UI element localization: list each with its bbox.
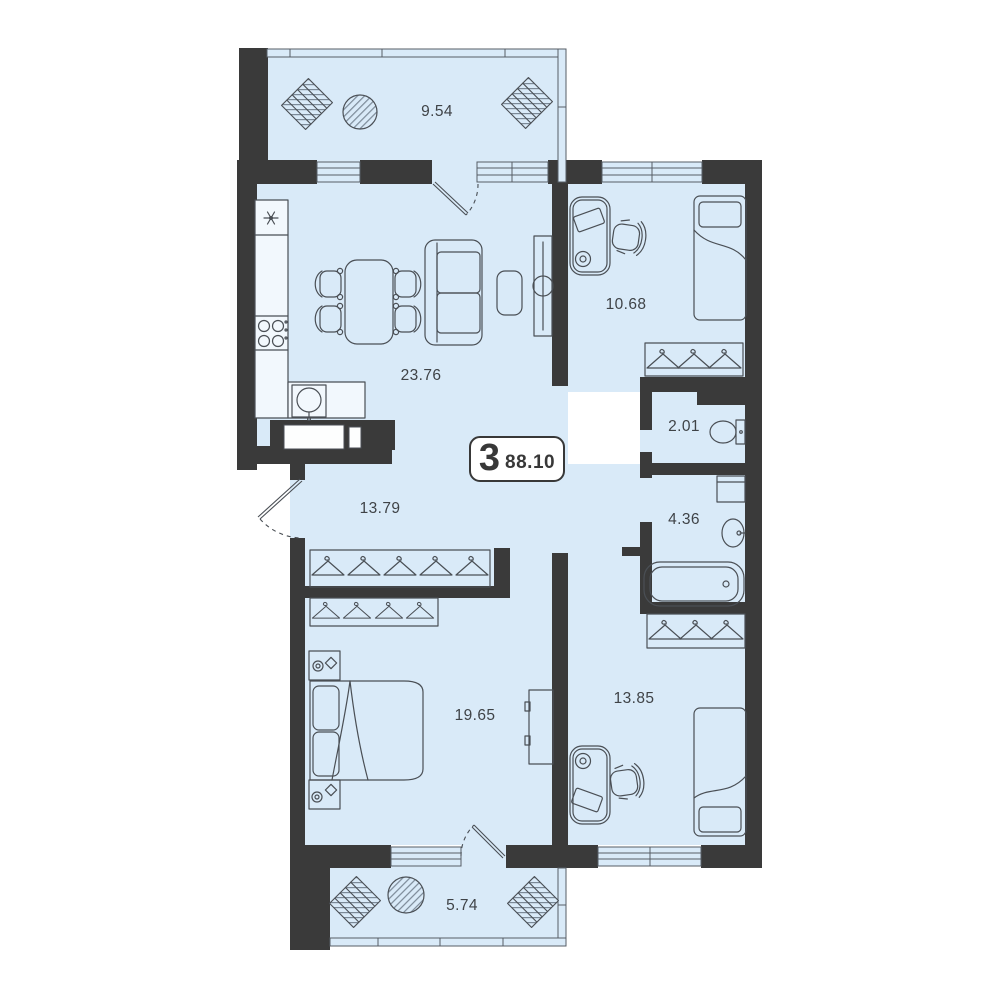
room-label-kitchen-living: 23.76 — [401, 367, 442, 385]
window-icon — [598, 847, 701, 866]
duct-shafts — [284, 425, 361, 449]
floor-plan: 9.54 23.76 10.68 2.01 13.79 4.36 19.65 1… — [0, 0, 1000, 1000]
wall-segment — [697, 392, 753, 405]
wall-segment — [305, 586, 510, 598]
wall-segment — [701, 845, 762, 868]
room-label-wc: 2.01 — [668, 418, 700, 436]
window-icon — [391, 847, 461, 866]
wall-segment — [622, 547, 652, 556]
window-icon — [477, 162, 548, 182]
wall-segment — [640, 392, 652, 430]
badge-rooms-count: 3 — [479, 442, 500, 474]
balcony-table-icon — [343, 95, 377, 129]
wall-segment — [290, 845, 330, 950]
apartment-badge: 3 88.10 — [469, 436, 565, 482]
room-label-bedroom-1: 10.68 — [606, 296, 647, 314]
room-label-bathroom: 4.36 — [668, 511, 700, 529]
window-icon — [602, 162, 702, 182]
wall-segment — [640, 602, 762, 614]
room-label-balcony-bottom: 5.74 — [446, 897, 478, 915]
floor-plan-drawing — [0, 0, 1000, 1000]
wall-segment — [640, 522, 652, 607]
wall-segment — [237, 160, 257, 470]
room-fills — [255, 50, 745, 940]
wall-segment — [745, 160, 762, 868]
wall-segment — [552, 160, 568, 386]
badge-total-area: 88.10 — [505, 452, 555, 474]
wall-segment — [290, 538, 305, 868]
wall-segment — [506, 845, 598, 868]
wall-segment — [640, 377, 762, 392]
room-label-bedroom-3: 13.85 — [614, 690, 655, 708]
wall-segment — [290, 460, 305, 480]
wall-segment — [494, 548, 510, 598]
room-label-hallway: 13.79 — [360, 500, 401, 518]
balcony-table-icon — [388, 877, 424, 913]
window-icon — [317, 162, 360, 182]
room-label-bedroom-2: 19.65 — [455, 707, 496, 725]
wall-segment — [640, 463, 762, 475]
wall-segment — [552, 553, 568, 868]
wall-segment — [360, 160, 432, 184]
room-label-balcony-top: 9.54 — [421, 103, 453, 121]
